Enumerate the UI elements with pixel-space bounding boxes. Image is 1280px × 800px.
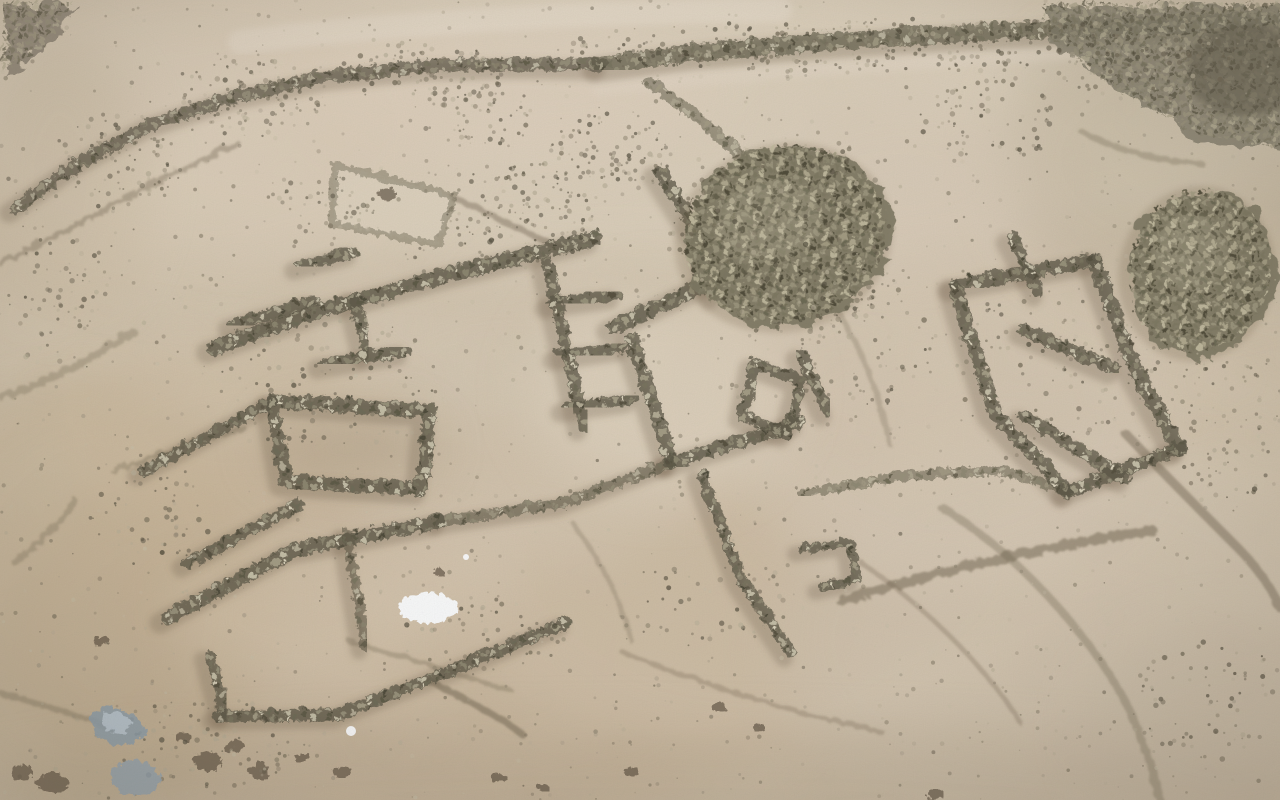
vignette	[0, 0, 1280, 800]
aerial-photo-frame	[0, 0, 1280, 800]
excavation-orthophoto	[0, 0, 1280, 800]
